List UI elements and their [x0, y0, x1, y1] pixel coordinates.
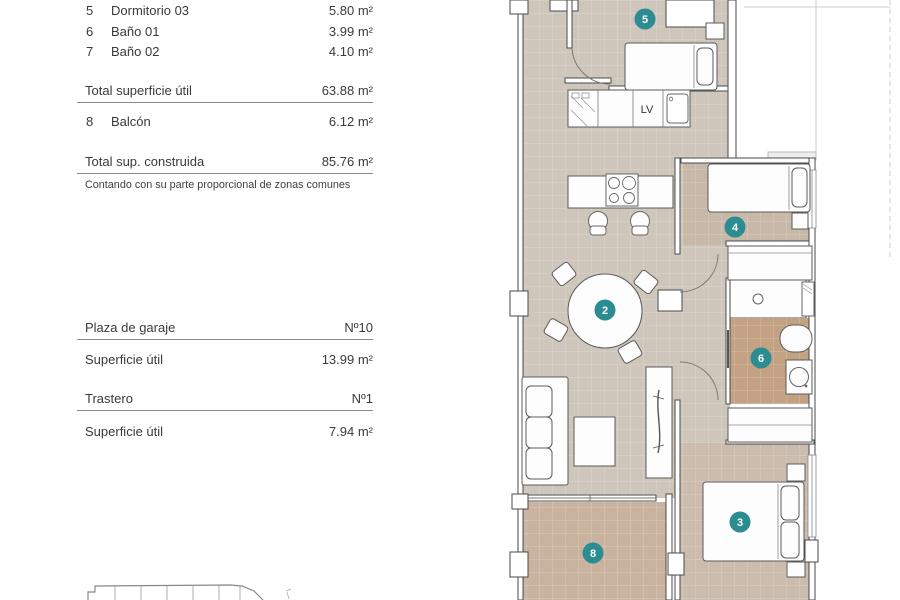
storage-label: Trastero: [85, 391, 133, 406]
garage-area-value: 13.99 m²: [322, 352, 373, 367]
wardrobe-bedroom-3: [728, 408, 812, 442]
area-row-dormitorio-03: 5 Dormitorio 03 5.80 m²: [77, 3, 373, 18]
wall-pillar: [510, 552, 528, 577]
hall-left-wall: [675, 158, 680, 254]
nightstand: [787, 464, 805, 481]
garage-area-row: Superficie útil 13.99 m²: [77, 352, 373, 367]
bedroom-4-top-wall: [681, 158, 813, 163]
nightstand: [792, 213, 808, 229]
building-key-plan: [82, 583, 297, 600]
kitchen-sink: [667, 94, 688, 123]
floor-plan: LV: [500, 0, 900, 600]
nightstand: [706, 23, 724, 39]
unit-dividers: [115, 585, 240, 600]
wardrobe-hall: [728, 246, 812, 280]
wall-pillar: [510, 291, 528, 316]
storage-row: Trastero Nº1: [77, 391, 373, 411]
area-row-bano-02: 7 Baño 02 4.10 m²: [77, 44, 373, 59]
bathtub: [780, 325, 812, 352]
bathroom-7-floor: [728, 280, 806, 318]
room-label: Balcón: [108, 114, 151, 129]
balcony-right-wall: [666, 494, 672, 600]
bed-single-bedroom-4: [708, 164, 810, 212]
room-badge-5: 5: [635, 9, 656, 30]
garage-number: Nº10: [344, 320, 373, 335]
room-area: 3.99 m²: [329, 24, 373, 39]
garage-area-label: Superficie útil: [85, 352, 163, 367]
total-label: Total sup. construida: [85, 154, 204, 169]
room-badge-4: 4: [725, 217, 746, 238]
key-plan-mark: [286, 589, 291, 599]
shower-column: [802, 282, 814, 316]
room-area: 4.10 m²: [329, 44, 373, 59]
garage-label: Plaza de garaje: [85, 320, 175, 335]
room-area: 6.12 m²: [329, 114, 373, 129]
storage-area-label: Superficie útil: [85, 424, 163, 439]
total-useful-row: Total superficie útil 63.88 m²: [77, 83, 373, 103]
room-number: 7: [77, 44, 108, 59]
room-badge-6: 6: [751, 348, 772, 369]
storage-area-value: 7.94 m²: [329, 424, 373, 439]
total-value: 63.88 m²: [322, 83, 373, 98]
total-label: Total superficie útil: [85, 83, 192, 98]
room-label: Baño 01: [108, 24, 159, 39]
bedroom-5-left-wall: [567, 0, 572, 48]
total-built-row: Total sup. construida 85.76 m²: [77, 154, 373, 174]
area-row-balcon: 8 Balcón 6.12 m²: [77, 114, 373, 129]
sliding-door-balcony: [528, 495, 656, 501]
kitchen-counter: LV: [568, 90, 690, 128]
room-area: 5.80 m²: [329, 3, 373, 18]
badge-number: 4: [732, 222, 739, 234]
washbasin: [786, 360, 812, 394]
room-number: 5: [77, 3, 108, 18]
badge-number: 8: [590, 548, 596, 560]
bed-single-bedroom-5: [625, 43, 717, 90]
wall-pillar: [805, 540, 818, 562]
room-label: Baño 02: [108, 44, 159, 59]
storage-area-row: Superficie útil 7.94 m²: [77, 424, 373, 439]
sofa: [522, 377, 568, 485]
room-label: Dormitorio 03: [108, 3, 189, 18]
bedroom-4-bottom-wall: [726, 241, 814, 246]
bar-stool: [631, 212, 650, 236]
bed-double-bedroom-3: [703, 482, 804, 561]
coffee-table: [574, 417, 615, 466]
wall-pillar: [550, 0, 578, 11]
garage-row: Plaza de garaje Nº10: [77, 320, 373, 340]
area-row-bano-01: 6 Baño 01 3.99 m²: [77, 24, 373, 39]
wall-pillar: [658, 290, 682, 311]
bedroom-5-bottom-wall: [565, 78, 611, 83]
dishwasher-label: LV: [641, 104, 654, 116]
room-number: 6: [77, 24, 108, 39]
wall-pillar: [668, 553, 684, 575]
wall-pillar: [510, 0, 528, 14]
nightstand: [787, 562, 805, 577]
storage-number: Nº1: [352, 391, 373, 406]
wall-pillar: [512, 494, 528, 509]
total-value: 85.76 m²: [322, 154, 373, 169]
room-badge-8: 8: [583, 543, 604, 564]
room-badge-3: 3: [730, 512, 751, 533]
badge-number: 2: [602, 305, 608, 317]
badge-number: 6: [758, 353, 764, 365]
room-number: 8: [77, 114, 108, 129]
window-bedroom-3: [808, 455, 816, 537]
bedroom-5-right-wall: [728, 0, 736, 158]
badge-number: 3: [737, 517, 743, 529]
bar-stool: [589, 212, 608, 236]
cooktop: [606, 174, 638, 206]
badge-number: 5: [642, 14, 648, 26]
floorplan-sheet: 5 Dormitorio 03 5.80 m² 6 Baño 01 3.99 m…: [0, 0, 900, 600]
tv-unit: [646, 367, 672, 478]
common-zones-footnote: Contando con su parte proporcional de zo…: [85, 179, 381, 191]
room-badge-2: 2: [595, 300, 616, 321]
building-outline: [88, 585, 263, 600]
